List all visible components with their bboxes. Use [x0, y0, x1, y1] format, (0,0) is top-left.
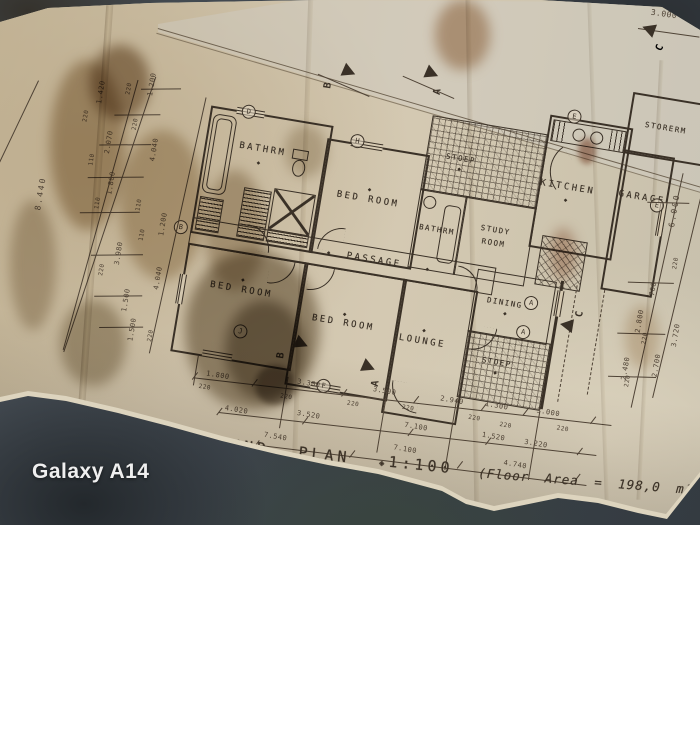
- shower-crossbox: [268, 188, 316, 236]
- light-symbol: ◆: [425, 266, 430, 274]
- camera-watermark: Galaxy A14: [32, 460, 149, 484]
- stain: [205, 170, 265, 290]
- light-symbol: ◆: [503, 310, 508, 318]
- stain: [435, 0, 490, 70]
- light-symbol: ◆: [367, 186, 372, 194]
- section-letter: C: [574, 310, 586, 318]
- dimension-value: 3.720: [670, 323, 682, 348]
- wall-thickness: 220: [97, 263, 106, 276]
- wall-thickness: 220: [671, 257, 680, 270]
- light-symbol: ◆: [563, 197, 568, 205]
- dimension-rung: [94, 295, 142, 297]
- light-symbol: ◆: [342, 311, 347, 319]
- dimension-value: 6.000: [667, 193, 682, 228]
- section-letter: B: [322, 82, 334, 90]
- photo-scene: BATHRM BED ROOM STOEP BATHRM STUDY ROOM …: [0, 0, 700, 525]
- dimension-value: 1.500: [120, 288, 132, 313]
- wall-thickness: 220: [623, 374, 632, 387]
- stain: [550, 228, 576, 280]
- light-symbol: ◆: [256, 159, 261, 167]
- stain: [120, 130, 205, 280]
- light-symbol: ◆: [326, 249, 331, 257]
- dimension-rung: [608, 376, 656, 378]
- section-triangle: [559, 317, 574, 333]
- window: [553, 290, 564, 317]
- light-symbol: ◆: [493, 369, 498, 377]
- light-symbol: ◆: [457, 166, 462, 174]
- light-symbol: ◆: [422, 327, 427, 335]
- dimension-value: 3.980: [113, 241, 125, 266]
- stain: [625, 305, 659, 369]
